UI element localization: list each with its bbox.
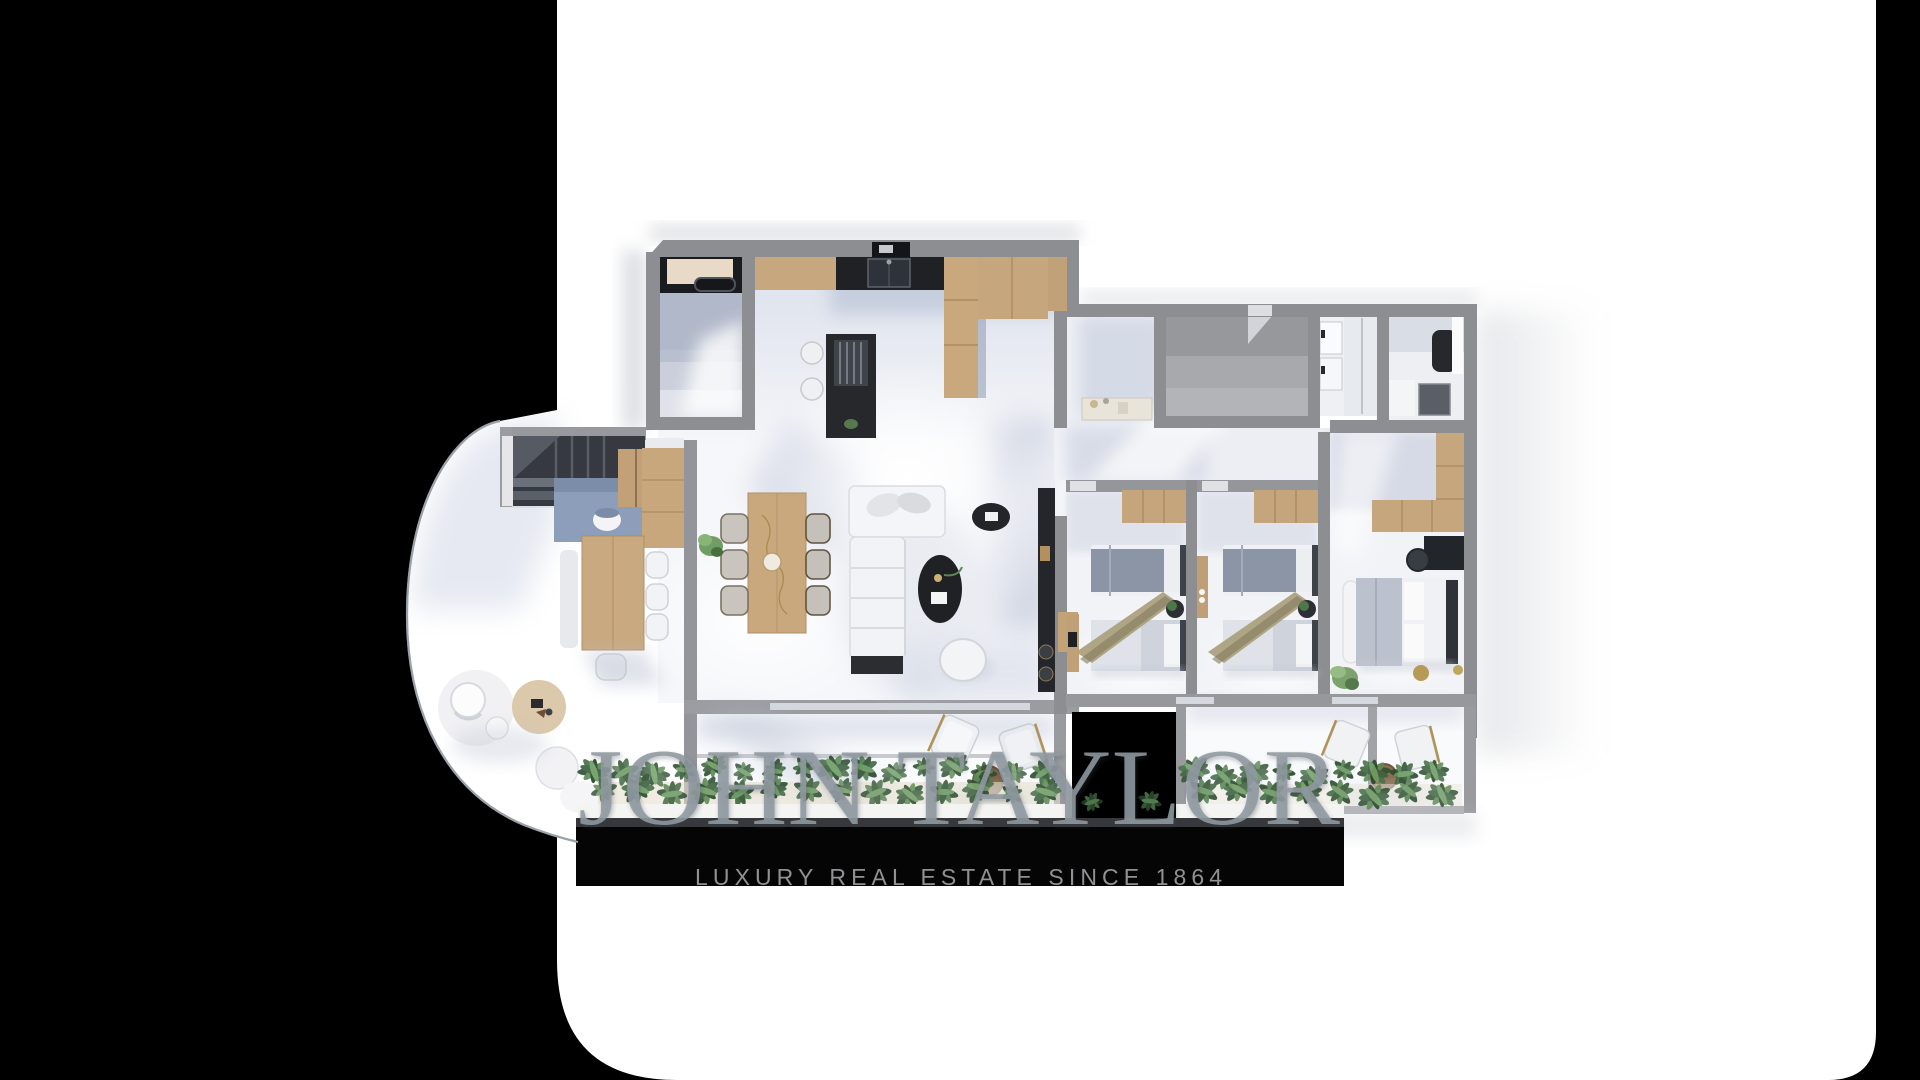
svg-text:LUXURY REAL ESTATE SINCE 1864: LUXURY REAL ESTATE SINCE 1864 bbox=[695, 864, 1228, 890]
svg-text:JOHN TAYLOR: JOHN TAYLOR bbox=[578, 727, 1340, 848]
